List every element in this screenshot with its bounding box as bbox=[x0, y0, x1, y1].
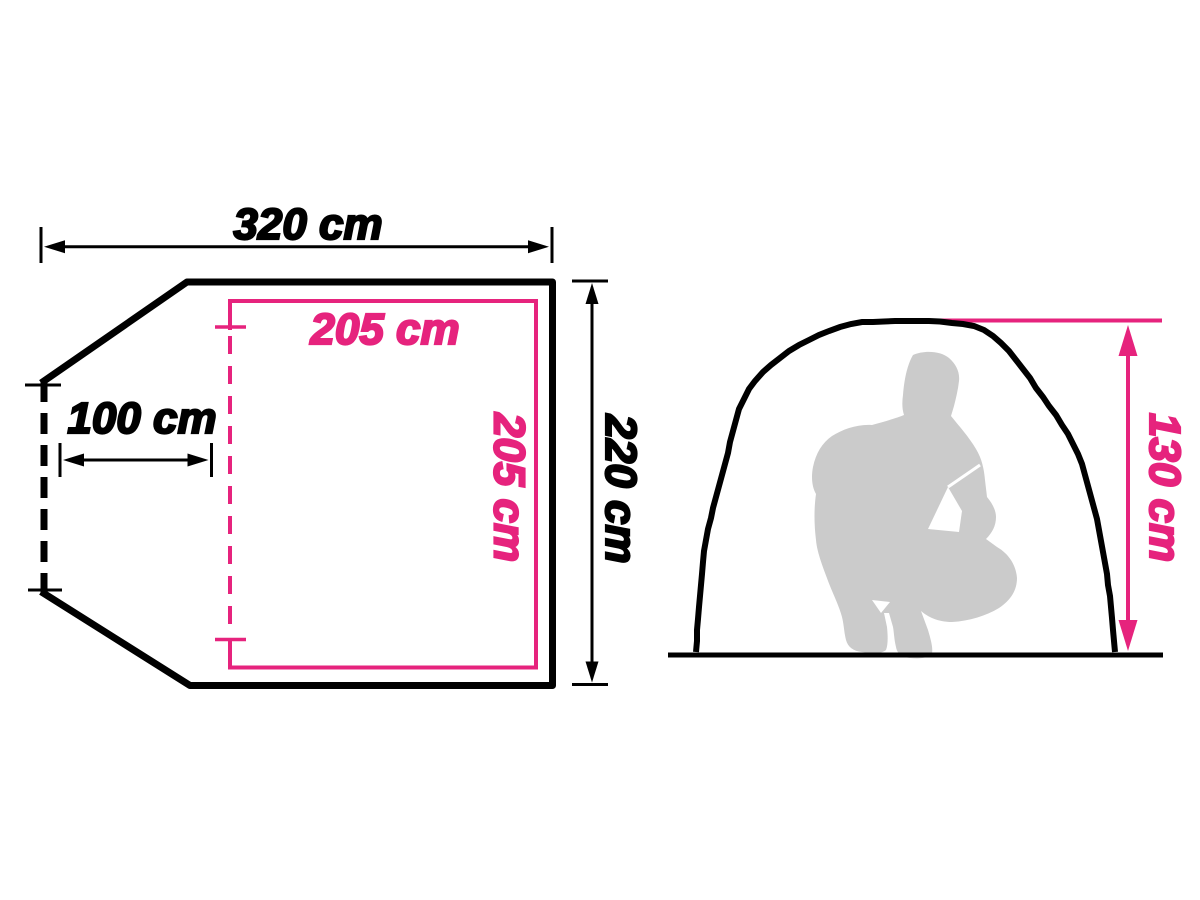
svg-text:320 cm: 320 cm bbox=[233, 200, 382, 249]
svg-text:205 cm: 205 cm bbox=[485, 412, 534, 562]
svg-text:100 cm: 100 cm bbox=[67, 394, 216, 443]
svg-text:220 cm: 220 cm bbox=[596, 413, 645, 563]
svg-text:130 cm: 130 cm bbox=[1140, 413, 1189, 562]
svg-text:205 cm: 205 cm bbox=[309, 305, 459, 354]
